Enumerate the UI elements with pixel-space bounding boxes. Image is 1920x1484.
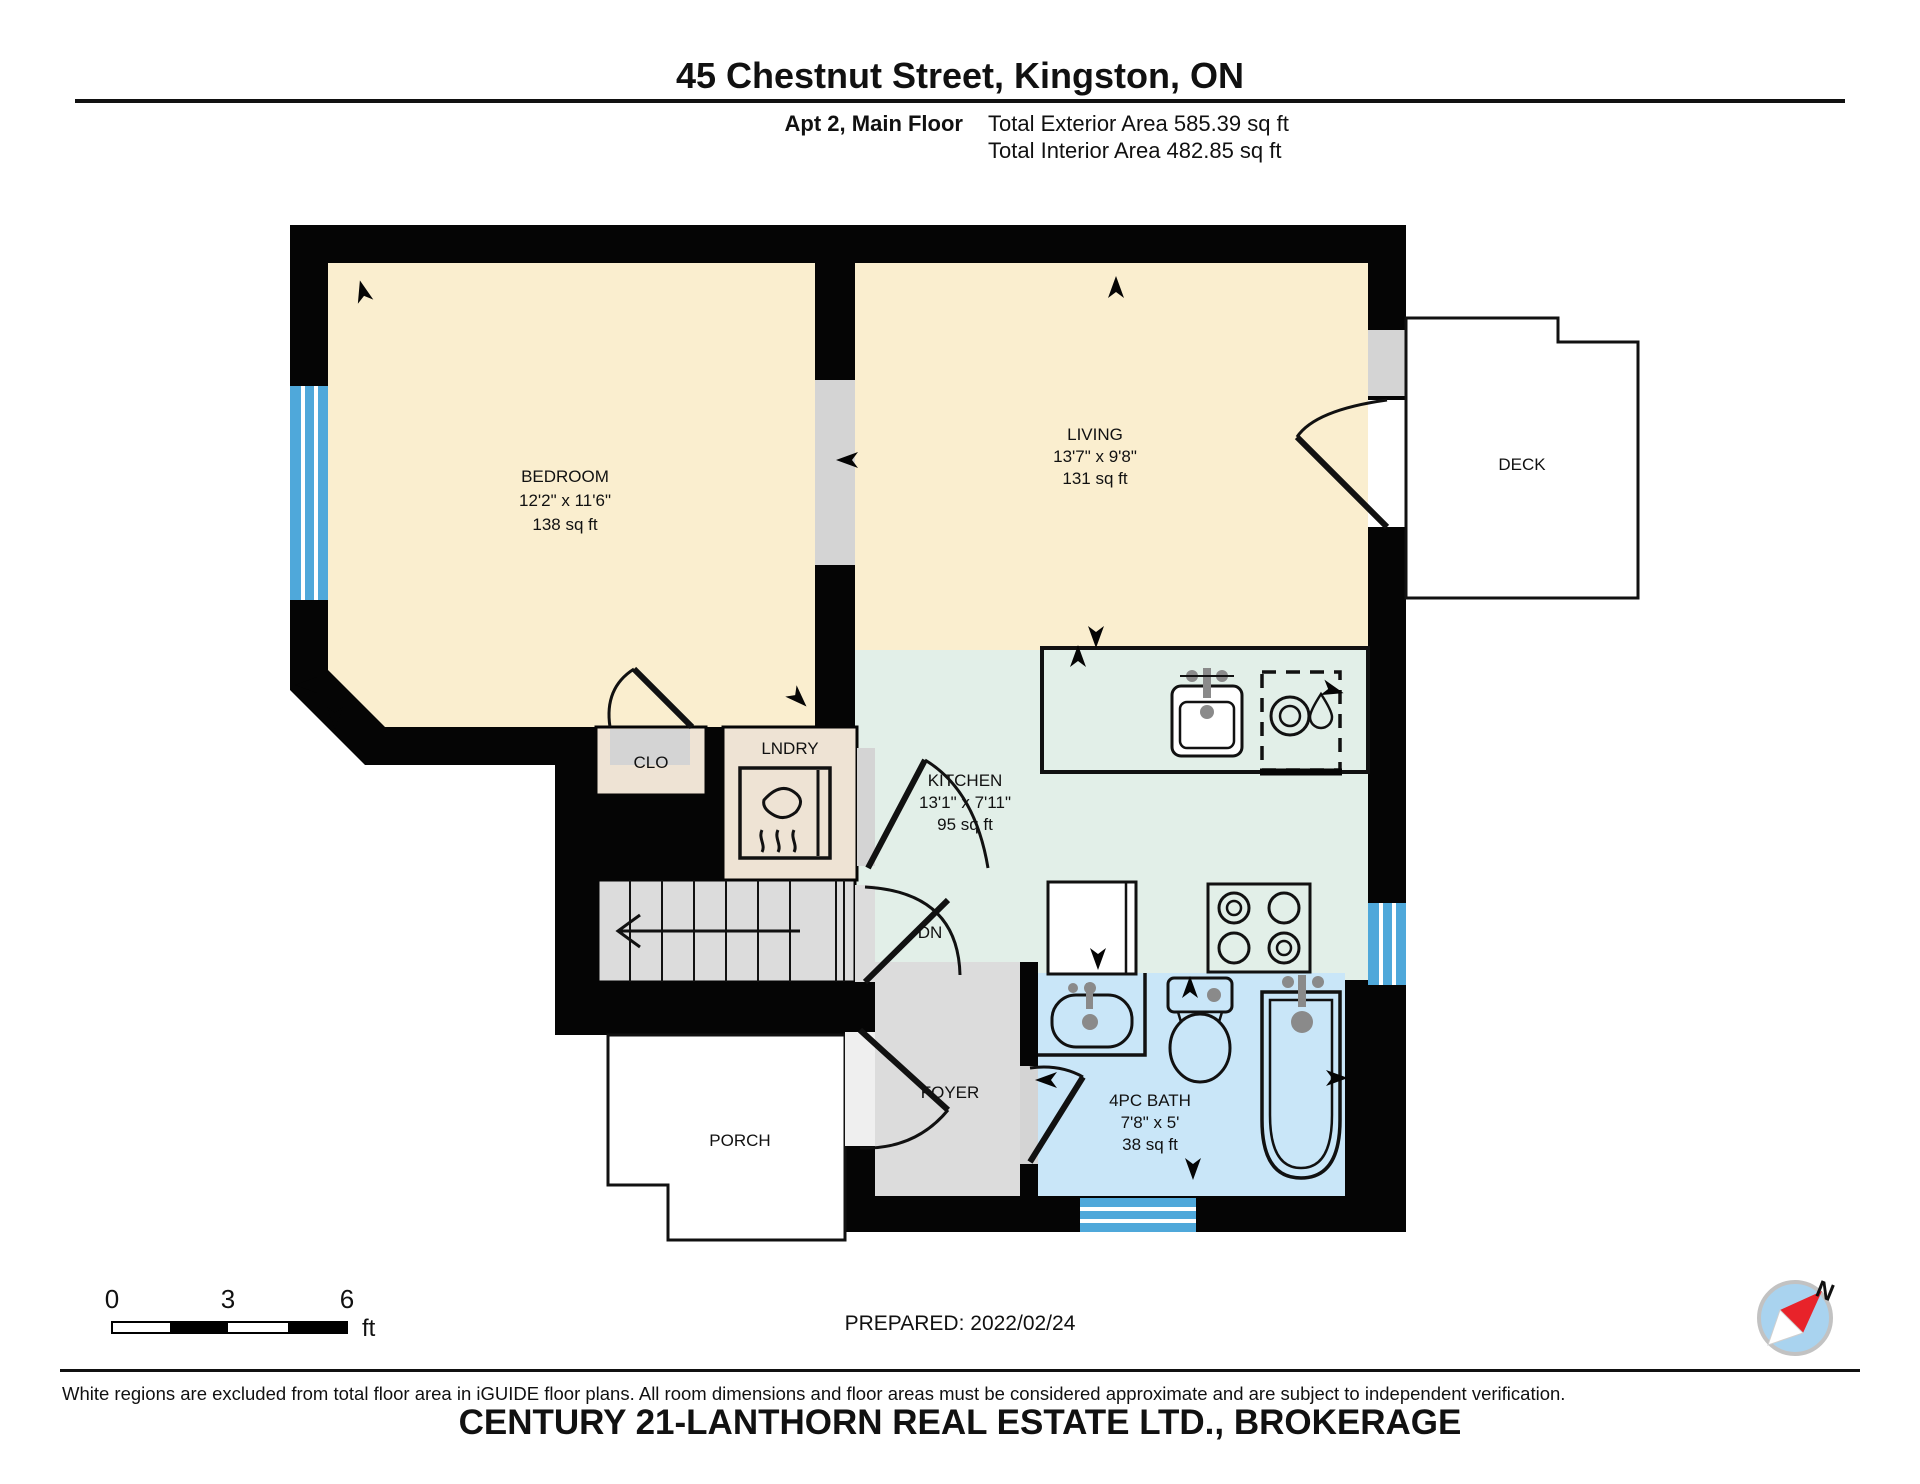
- header-divider: [75, 99, 1845, 103]
- exterior-area-label: Total Exterior Area 585.39 sq ft: [988, 111, 1289, 136]
- deck-door-opening: [1368, 400, 1406, 527]
- living-dimensions: 13'7" x 9'8": [1053, 447, 1137, 466]
- bathtub-icon: [1262, 975, 1340, 1178]
- kitchen-dimensions: 13'1" x 7'11": [919, 793, 1011, 812]
- scale-unit-label: ft: [362, 1315, 376, 1342]
- room-foyer: [875, 962, 1020, 1196]
- window-bedroom-icon: [290, 386, 328, 600]
- window-living-right-icon: [1368, 330, 1406, 396]
- window-kitchen-icon: [1368, 903, 1406, 985]
- brokerage-watermark: CENTURY 21-LANTHORN REAL ESTATE LTD., BR…: [459, 1403, 1462, 1442]
- laundry-label: LNDRY: [761, 739, 818, 758]
- kitchen-door-opening: [857, 748, 875, 866]
- stove-icon: [1208, 884, 1310, 972]
- porch-label: PORCH: [709, 1131, 770, 1150]
- footer-divider: [60, 1369, 1860, 1372]
- living-label: LIVING: [1067, 425, 1123, 444]
- cased-opening-bedroom-living: [815, 380, 855, 565]
- bedroom-dimensions: 12'2" x 11'6": [519, 491, 611, 510]
- scale-bar: 0 3 6 ft: [105, 1284, 376, 1342]
- stairs-door-opening: [855, 885, 875, 982]
- porch-door-opening: [845, 1032, 875, 1146]
- closet-label: CLO: [634, 753, 669, 772]
- kitchen-label: KITCHEN: [928, 771, 1003, 790]
- window-bath-icon: [1080, 1198, 1196, 1232]
- floor-plan-page: 45 Chestnut Street, Kingston, ON Apt 2, …: [0, 0, 1920, 1484]
- scale-tick-3: 3: [221, 1284, 235, 1314]
- fridge-icon: [1048, 882, 1136, 974]
- bath-dimensions: 7'8" x 5': [1121, 1113, 1180, 1132]
- scale-tick-6: 6: [340, 1284, 354, 1314]
- living-area: 131 sq ft: [1062, 469, 1127, 488]
- page-title: 45 Chestnut Street, Kingston, ON: [676, 55, 1244, 96]
- bedroom-area: 138 sq ft: [532, 515, 597, 534]
- stairs: [598, 880, 855, 982]
- disclaimer-text: White regions are excluded from total fl…: [62, 1383, 1565, 1404]
- toilet-icon: [1168, 978, 1232, 1082]
- interior-area-label: Total Interior Area 482.85 sq ft: [988, 138, 1282, 163]
- floor-plan-canvas: 45 Chestnut Street, Kingston, ON Apt 2, …: [0, 0, 1920, 1484]
- bath-area: 38 sq ft: [1122, 1135, 1178, 1154]
- unit-label: Apt 2, Main Floor: [785, 111, 964, 136]
- foyer-label: FOYER: [921, 1083, 980, 1102]
- prepared-date-label: PREPARED: 2022/02/24: [845, 1312, 1076, 1335]
- bedroom-label: BEDROOM: [521, 467, 609, 486]
- kitchen-area: 95 sq ft: [937, 815, 993, 834]
- bath-label: 4PC BATH: [1109, 1091, 1191, 1110]
- stairs-dn-label: DN: [918, 923, 943, 942]
- scale-tick-0: 0: [105, 1284, 119, 1314]
- compass-icon: N: [1759, 1276, 1838, 1354]
- deck-label: DECK: [1498, 455, 1546, 474]
